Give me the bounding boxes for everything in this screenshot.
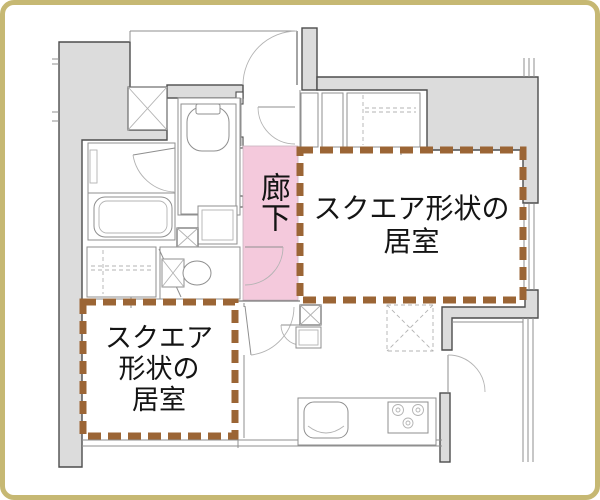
living-room-doors — [245, 306, 301, 355]
washroom — [177, 98, 240, 247]
east-window-lower — [523, 318, 533, 462]
corridor-label: 廊下 — [251, 172, 287, 244]
range-hood-icon — [387, 305, 433, 351]
west-wall-ticks — [52, 59, 59, 121]
square-room-label-left: スクエア 形状の 居室 — [83, 302, 235, 436]
gas-stove-icon — [388, 402, 428, 433]
floor-plan: 廊下 スクエア形状の 居室 スクエア 形状の 居室 — [0, 0, 600, 500]
bathroom — [88, 143, 175, 240]
closet — [301, 93, 420, 147]
toilet-room — [159, 247, 240, 299]
kitchen-sink-icon — [304, 402, 348, 438]
pipe-space-icon — [128, 87, 167, 130]
kitchen-counter — [298, 398, 436, 445]
pipe-space-icon — [177, 228, 198, 247]
washing-machine-space — [87, 247, 156, 297]
square-room-label-left-line1: スクエア — [105, 323, 213, 354]
entrance-door — [243, 31, 297, 85]
north-window-ticks — [524, 58, 534, 77]
bathtub-icon — [94, 197, 172, 237]
storage-box — [296, 305, 321, 348]
wall-washroom-top — [167, 85, 243, 98]
square-room-label-right-line1: スクエア形状の — [313, 192, 509, 225]
square-room-label-left-line2: 形状の — [119, 354, 200, 385]
square-room-label-left-line3: 居室 — [132, 385, 186, 416]
wall-kitchen-right — [440, 393, 450, 462]
square-room-label-right: スクエア形状の 居室 — [300, 150, 523, 300]
square-room-label-right-line2: 居室 — [383, 225, 439, 258]
balcony-door — [448, 355, 485, 392]
wall-entrance-right — [302, 28, 317, 90]
